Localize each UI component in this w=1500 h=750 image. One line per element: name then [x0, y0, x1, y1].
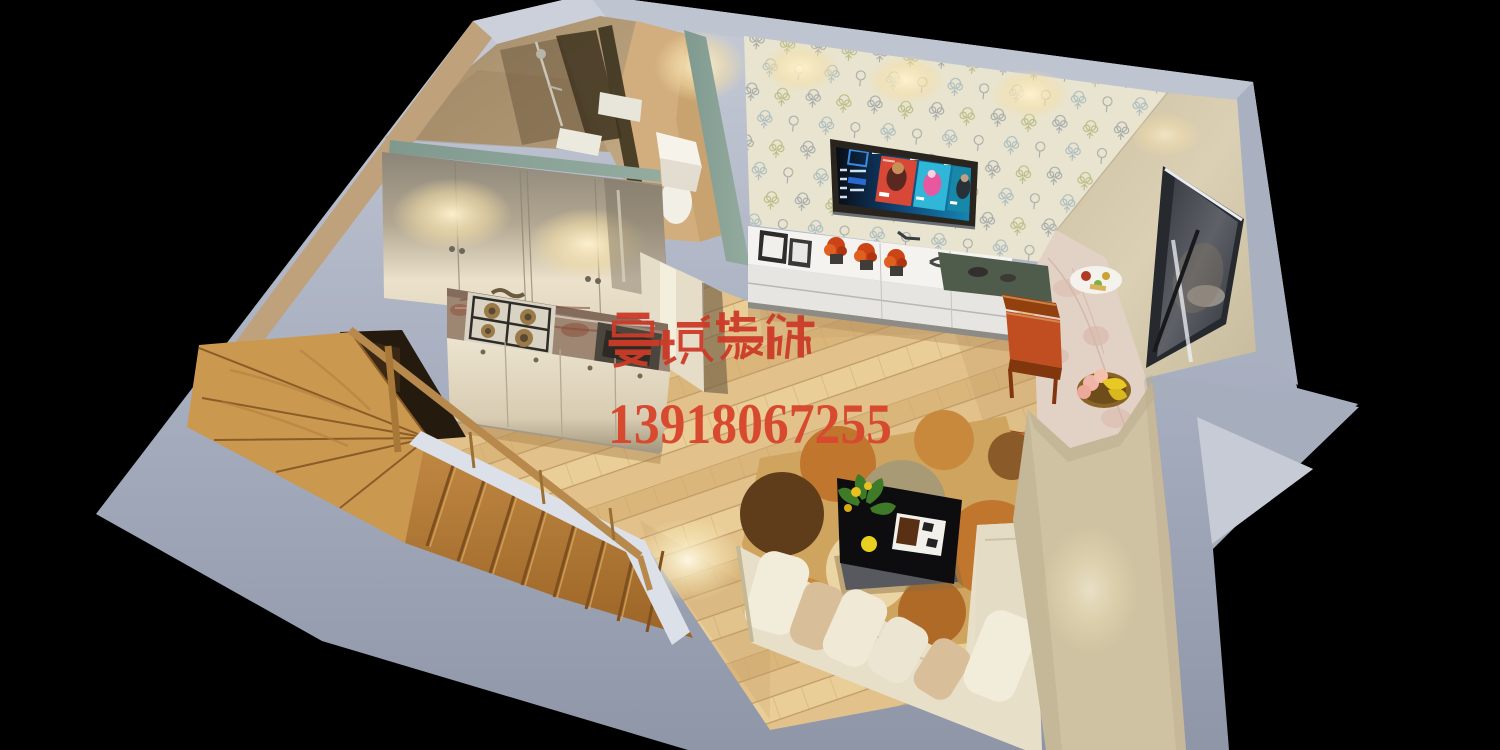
svg-text:13918067255: 13918067255: [608, 393, 892, 456]
